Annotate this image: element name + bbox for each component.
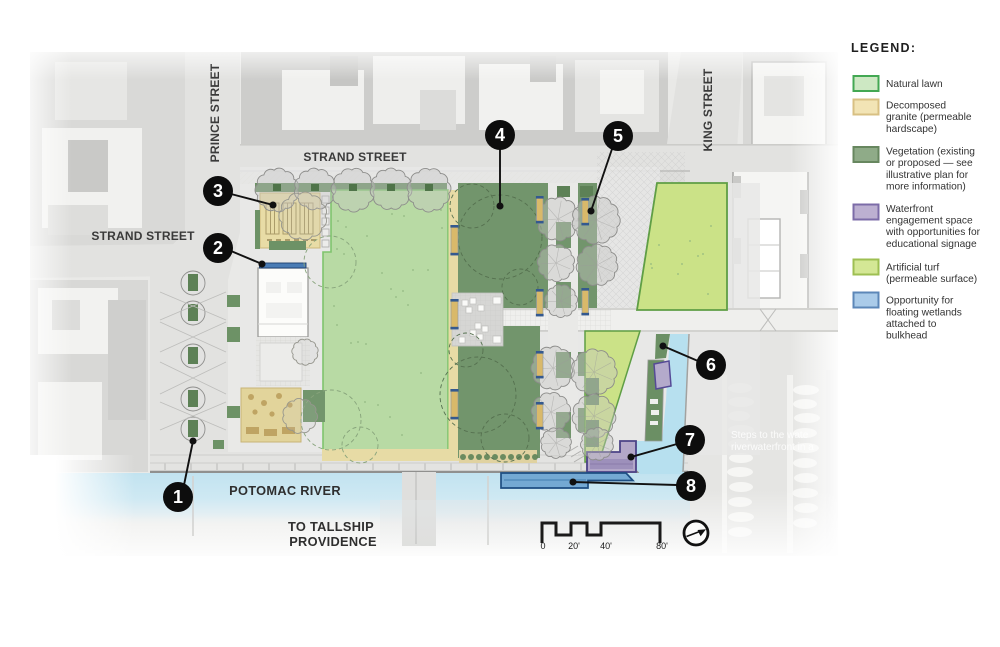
svg-text:PROVIDENCE: PROVIDENCE	[289, 534, 377, 549]
svg-text:hardscape): hardscape)	[886, 124, 937, 135]
svg-text:4: 4	[495, 125, 505, 145]
svg-text:80': 80'	[656, 541, 668, 551]
svg-text:20': 20'	[568, 541, 580, 551]
svg-text:riverwaterfront in a: riverwaterfront in a	[731, 442, 814, 453]
svg-text:POTOMAC RIVER: POTOMAC RIVER	[229, 483, 341, 498]
svg-text:engagement space: engagement space	[886, 216, 973, 227]
svg-text:3: 3	[213, 181, 223, 201]
svg-text:floating wetlands: floating wetlands	[886, 307, 962, 318]
svg-text:0: 0	[540, 541, 545, 551]
svg-text:7: 7	[685, 430, 695, 450]
svg-text:(permeable surface): (permeable surface)	[886, 274, 977, 285]
svg-text:LEGEND:: LEGEND:	[851, 41, 916, 55]
svg-text:Decomposed: Decomposed	[886, 101, 946, 112]
svg-text:bulkhead: bulkhead	[886, 331, 928, 342]
svg-text:Artificial turf: Artificial turf	[886, 263, 939, 274]
svg-text:Steps to the wate: Steps to the wate	[731, 430, 809, 441]
svg-text:illustrative plan for: illustrative plan for	[886, 170, 969, 181]
svg-text:6: 6	[706, 355, 716, 375]
svg-text:granite (permeable: granite (permeable	[886, 112, 972, 123]
svg-text:Opportunity for: Opportunity for	[886, 296, 954, 307]
svg-text:attached to: attached to	[886, 319, 937, 330]
svg-text:2: 2	[213, 238, 223, 258]
svg-text:KING STREET: KING STREET	[701, 68, 715, 151]
svg-text:40': 40'	[600, 541, 612, 551]
svg-text:or proposed — see: or proposed — see	[886, 158, 973, 169]
svg-text:Vegetation (existing: Vegetation (existing	[886, 147, 975, 158]
svg-text:5: 5	[613, 126, 623, 146]
svg-text:with opportunities for: with opportunities for	[885, 227, 981, 238]
svg-text:TO TALLSHIP: TO TALLSHIP	[288, 519, 374, 534]
svg-text:8: 8	[686, 476, 696, 496]
svg-text:1: 1	[173, 487, 183, 507]
svg-text:more information): more information)	[886, 182, 966, 193]
svg-text:PRINCE STREET: PRINCE STREET	[208, 63, 222, 162]
svg-text:Waterfront: Waterfront	[886, 204, 933, 215]
svg-text:Natural lawn: Natural lawn	[886, 79, 943, 90]
svg-text:STRAND STREET: STRAND STREET	[91, 229, 195, 243]
svg-text:STRAND STREET: STRAND STREET	[303, 150, 407, 164]
svg-text:educational signage: educational signage	[886, 239, 977, 250]
